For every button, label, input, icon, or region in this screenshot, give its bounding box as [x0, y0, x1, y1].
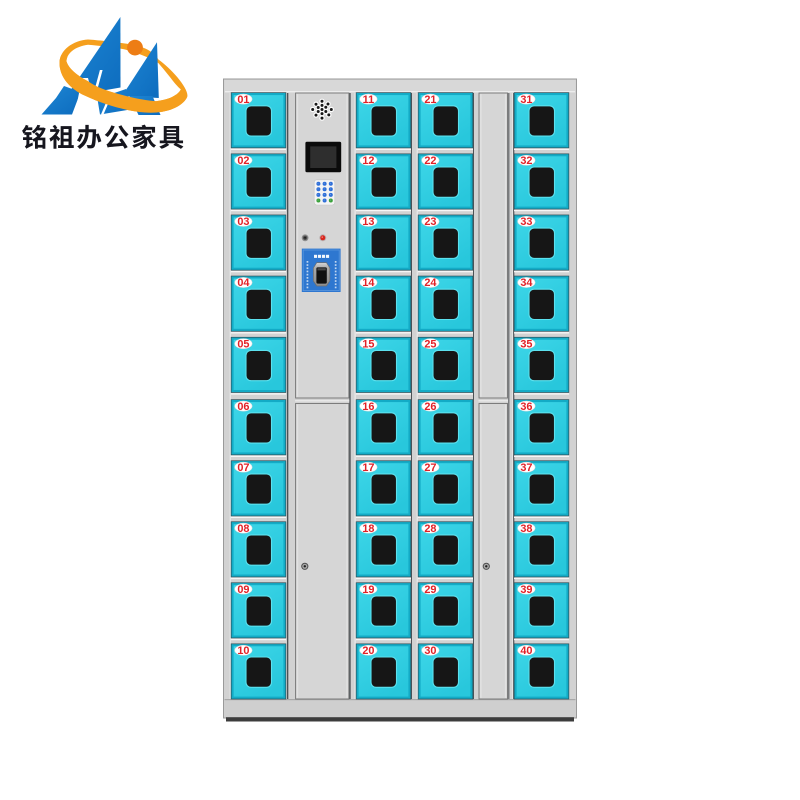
svg-text:06: 06 [237, 401, 249, 413]
svg-text:10: 10 [237, 645, 249, 657]
svg-text:25: 25 [424, 338, 436, 350]
svg-text:29: 29 [424, 584, 436, 596]
svg-text:39: 39 [520, 584, 532, 596]
svg-text:36: 36 [520, 401, 532, 413]
svg-text:32: 32 [520, 155, 532, 167]
svg-text:11: 11 [363, 94, 375, 106]
svg-text:12: 12 [362, 155, 374, 167]
svg-text:01: 01 [237, 94, 249, 106]
svg-text:15: 15 [362, 338, 374, 350]
svg-text:18: 18 [362, 523, 374, 535]
svg-text:19: 19 [362, 584, 374, 596]
svg-text:09: 09 [237, 584, 249, 596]
svg-text:07: 07 [237, 462, 249, 474]
svg-text:27: 27 [424, 462, 436, 474]
svg-text:23: 23 [424, 216, 436, 228]
svg-text:05: 05 [237, 338, 249, 350]
svg-text:24: 24 [424, 277, 436, 289]
svg-text:34: 34 [520, 277, 532, 289]
svg-text:31: 31 [520, 94, 532, 106]
svg-text:35: 35 [520, 338, 532, 350]
svg-text:17: 17 [362, 462, 374, 474]
svg-text:40: 40 [520, 645, 532, 657]
svg-text:13: 13 [362, 216, 374, 228]
svg-text:22: 22 [424, 155, 436, 167]
svg-text:04: 04 [237, 277, 249, 289]
svg-text:28: 28 [424, 523, 436, 535]
svg-text:14: 14 [362, 277, 374, 289]
svg-text:37: 37 [520, 462, 532, 474]
svg-text:26: 26 [424, 401, 436, 413]
svg-text:20: 20 [362, 645, 374, 657]
svg-text:02: 02 [237, 155, 249, 167]
svg-text:03: 03 [237, 216, 249, 228]
svg-text:21: 21 [424, 94, 436, 106]
svg-text:08: 08 [237, 523, 249, 535]
svg-text:38: 38 [520, 523, 532, 535]
svg-text:30: 30 [424, 645, 436, 657]
svg-text:16: 16 [362, 401, 374, 413]
svg-text:33: 33 [520, 216, 532, 228]
